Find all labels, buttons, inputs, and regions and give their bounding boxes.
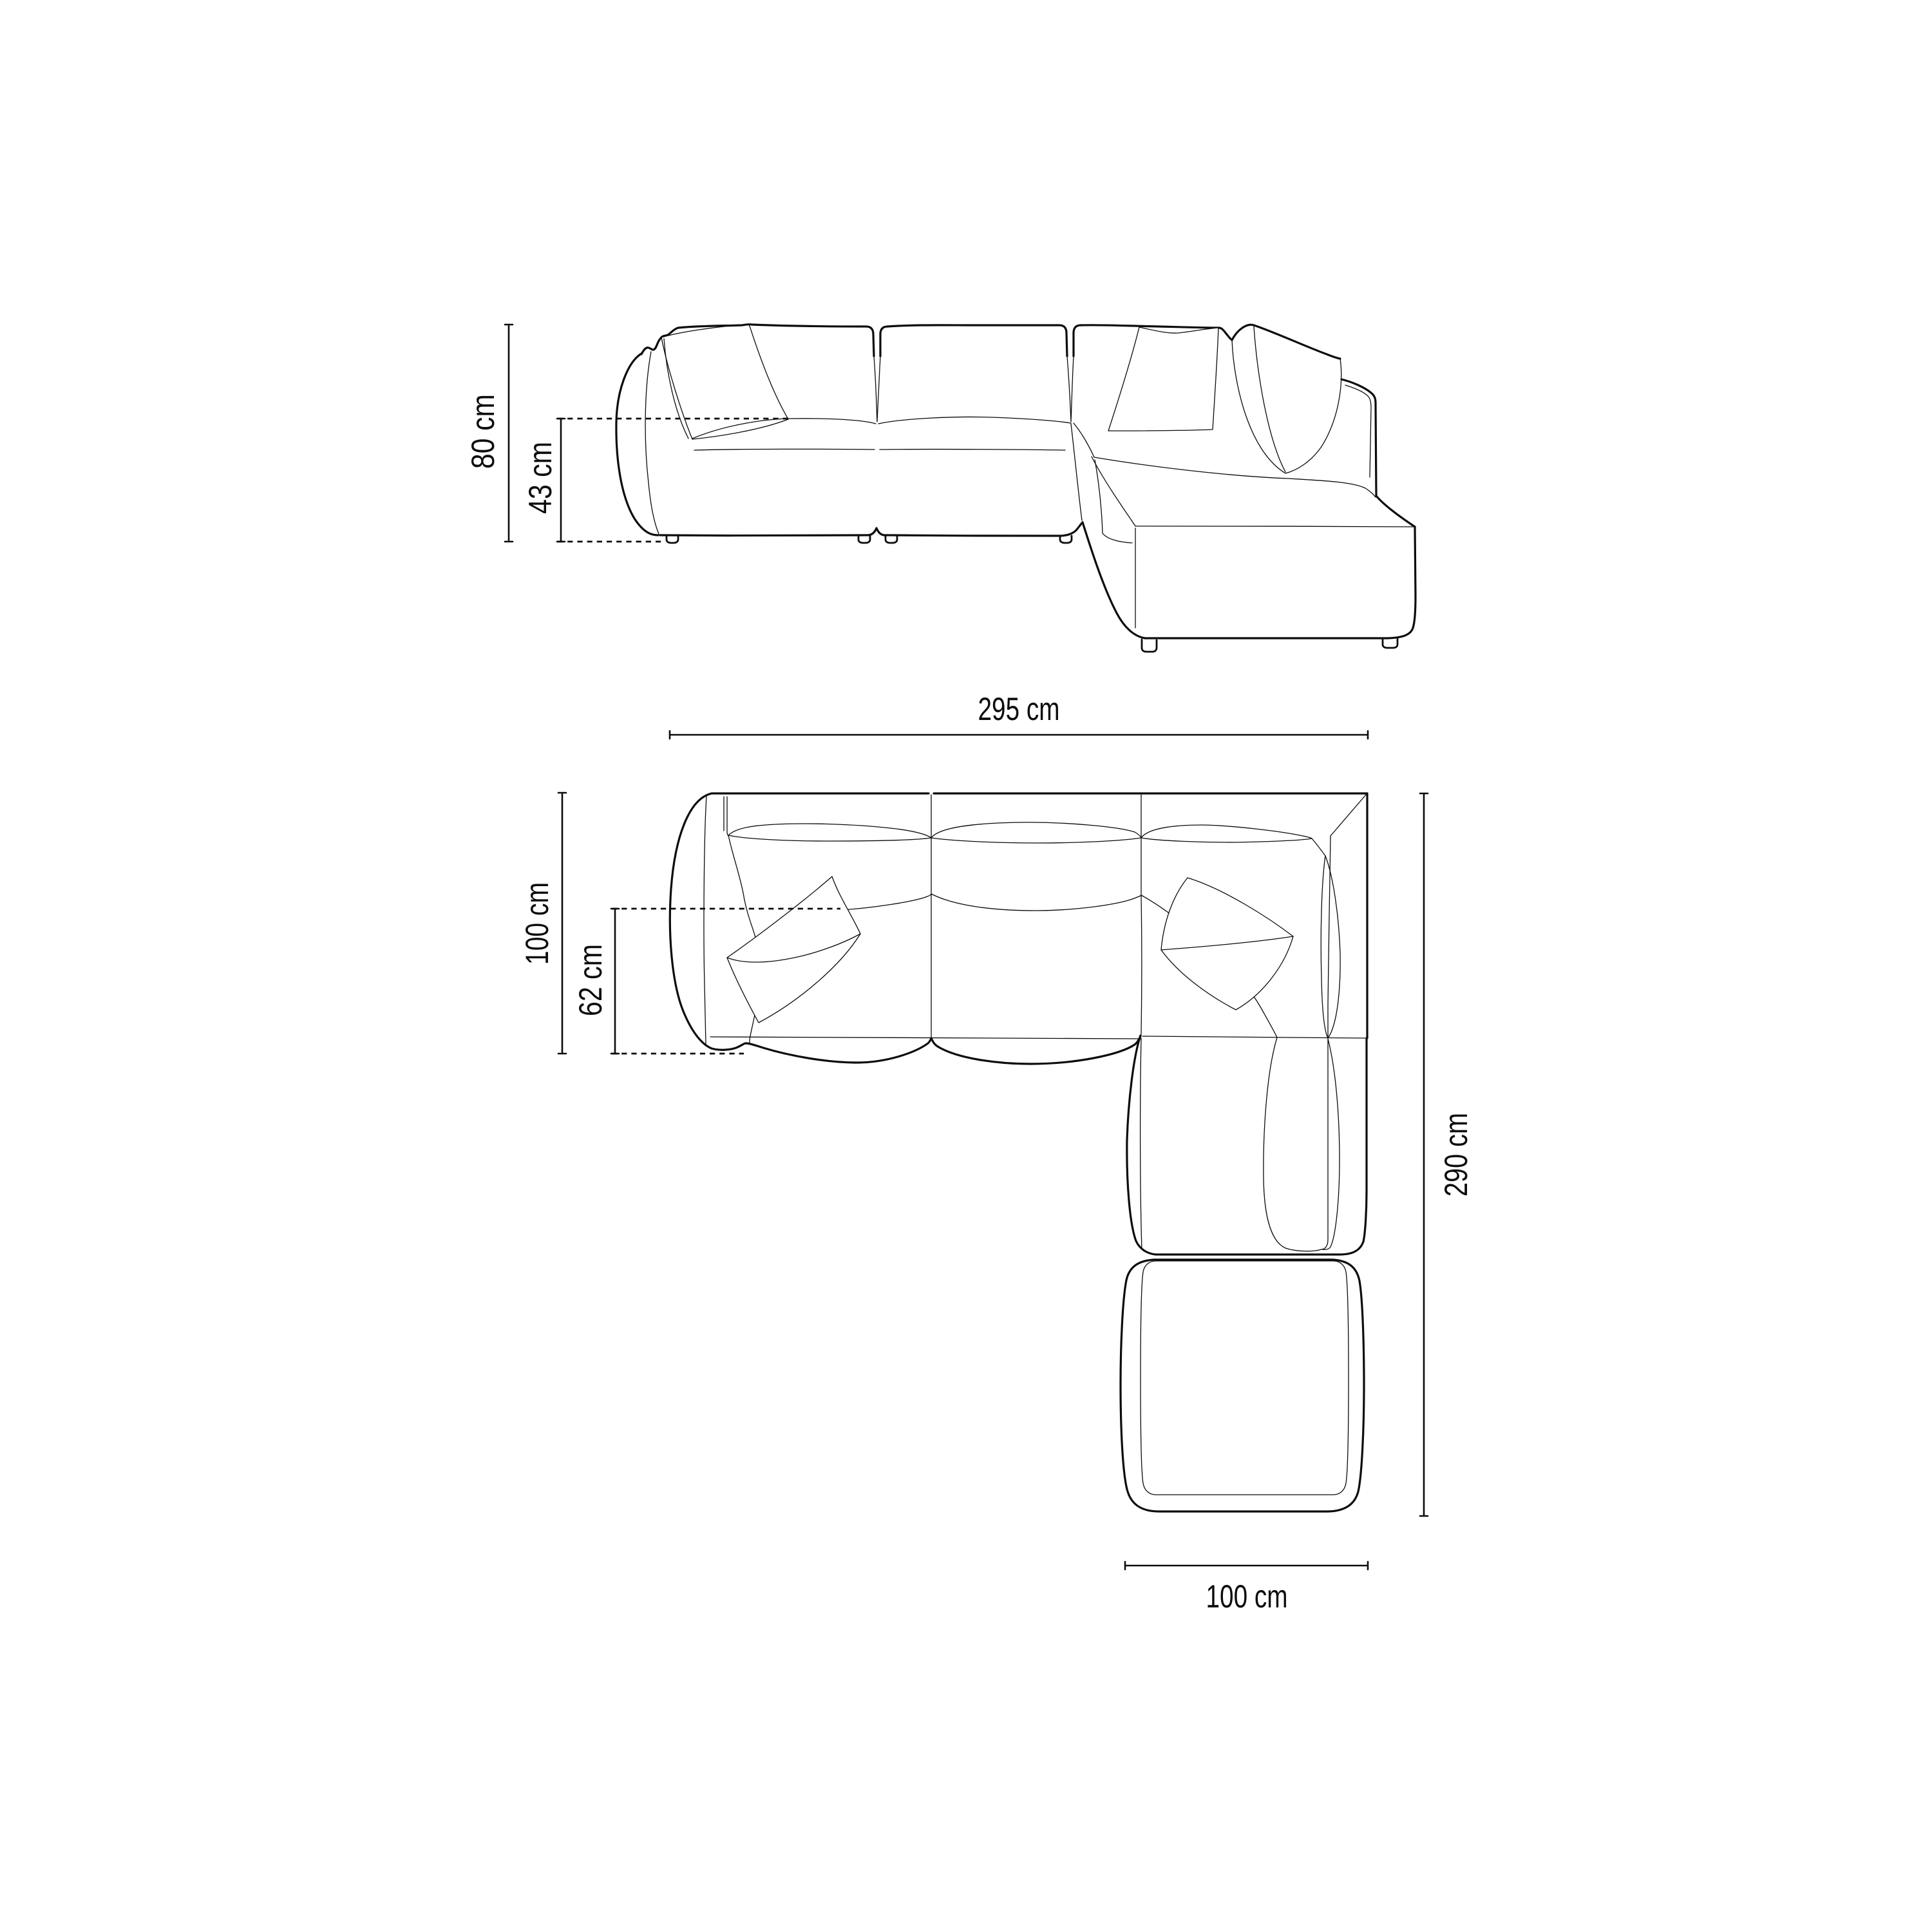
svg-text:290 cm: 290 cm [1438, 1113, 1474, 1197]
svg-text:80 cm: 80 cm [465, 394, 501, 469]
svg-text:62 cm: 62 cm [573, 944, 609, 1016]
svg-text:100 cm: 100 cm [519, 882, 555, 965]
svg-text:295 cm: 295 cm [978, 691, 1060, 727]
svg-text:100 cm: 100 cm [1206, 1578, 1288, 1615]
svg-text:43 cm: 43 cm [522, 442, 558, 514]
